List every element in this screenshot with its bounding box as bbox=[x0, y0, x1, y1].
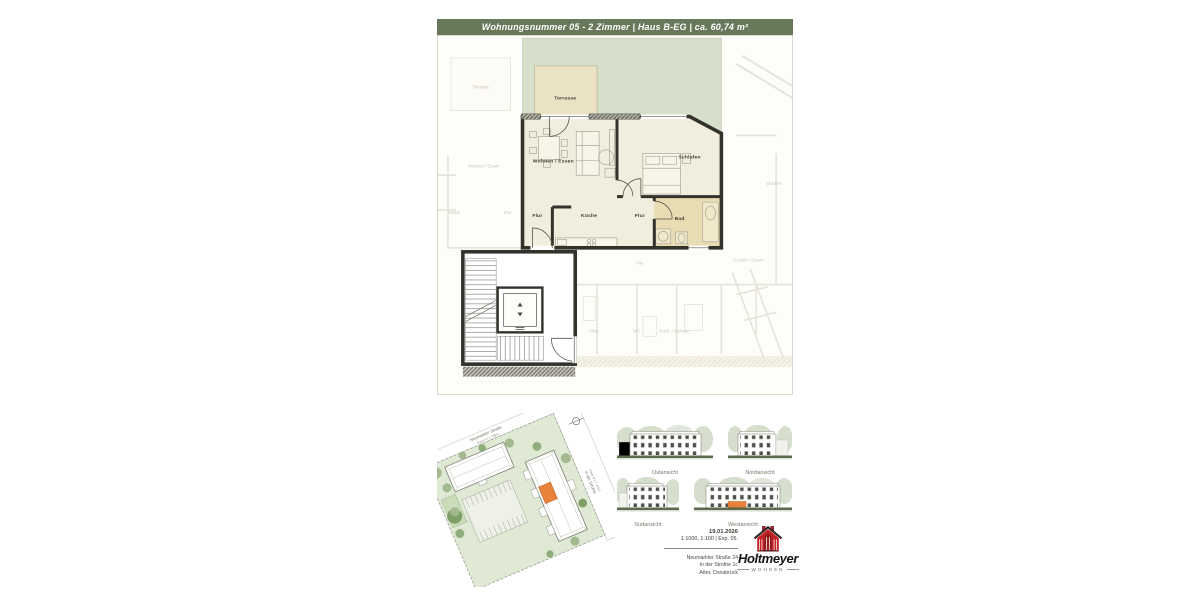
logo-dash-left bbox=[737, 569, 749, 570]
title-banner: Wohnungsnummer 05 - 2 Zimmer | Haus B-EG… bbox=[437, 19, 793, 35]
logo-dash-right bbox=[787, 569, 799, 570]
elevation-north-drawing bbox=[728, 424, 792, 464]
faded-terrace-left: Terrasse bbox=[473, 85, 490, 90]
titleblock-divider bbox=[664, 548, 738, 549]
floorplan-drawing: Terrasse Wohnen / Essen Flur Küche Flur … bbox=[438, 36, 792, 394]
siteplan-drawing: Neumarkter Straße Haus A | 1. WEG In der… bbox=[437, 413, 615, 587]
logo-name: Holtmeyer bbox=[737, 552, 799, 566]
faded-wc-bottom: WC bbox=[633, 328, 640, 333]
floorplan-panel: Terrasse Wohnen / Essen Flur Küche Flur … bbox=[437, 35, 793, 395]
elevation-north: Nordansicht bbox=[728, 424, 792, 476]
holtmeyer-house-icon bbox=[753, 524, 783, 552]
faded-storage-bottom: Abst. bbox=[589, 328, 599, 333]
label-kitchen: Küche bbox=[581, 213, 597, 219]
faded-hall-left: Flur bbox=[504, 210, 512, 215]
titleblock-date: 19.01.2026 bbox=[636, 528, 738, 536]
titleblock-address3: Atter, Osnabrück bbox=[636, 570, 738, 578]
stairwell bbox=[463, 252, 577, 377]
faded-ground-hatch bbox=[577, 356, 792, 367]
elevation-south-drawing bbox=[617, 476, 679, 516]
elevation-south: Südansicht bbox=[617, 476, 679, 528]
titleblock: 19.01.2026 1:1000, 1:100 | Exp. 05. Neum… bbox=[636, 528, 738, 578]
titleblock-scale: 1:1000, 1:100 | Exp. 05. bbox=[636, 536, 738, 544]
label-hall-center: Flur bbox=[635, 213, 645, 219]
faded-kitchen-left: Küche bbox=[448, 210, 461, 215]
page-title: Wohnungsnummer 05 - 2 Zimmer | Haus B-EG… bbox=[482, 22, 748, 32]
faded-living-left: Wohnen / Essen bbox=[468, 163, 500, 168]
elevation-west: Westansicht bbox=[694, 476, 792, 528]
faded-hall-bottom: Flur bbox=[636, 261, 644, 266]
siteplan: Neumarkter Straße Haus A | 1. WEG In der… bbox=[437, 413, 615, 587]
elevation-west-drawing bbox=[694, 476, 792, 516]
company-logo: Holtmeyer WOHNEN bbox=[737, 524, 799, 572]
label-bath: Bad bbox=[675, 216, 685, 222]
label-hall-entry: Flur bbox=[532, 213, 542, 219]
titleblock-address1: Neumarkter Straße 24 bbox=[636, 555, 738, 563]
label-terrace: Terrasse bbox=[554, 96, 576, 102]
faded-cook-live-bottom: Koch. / Wohnen bbox=[660, 328, 691, 333]
elevation-east-drawing bbox=[617, 424, 713, 464]
faded-cook-eat-bottom: Kochen / Essen bbox=[733, 258, 764, 263]
label-sleeping: Schlafen bbox=[678, 154, 700, 160]
plan-sheet: Wohnungsnummer 05 - 2 Zimmer | Haus B-EG… bbox=[0, 0, 1200, 600]
label-living: Wohnen / Essen bbox=[533, 158, 574, 164]
faded-living-right: Wohnen bbox=[766, 181, 782, 186]
elevation-east: Ostansicht bbox=[617, 424, 713, 476]
titleblock-address2: In der Strothe 1c bbox=[636, 562, 738, 570]
logo-tagline: WOHNEN bbox=[752, 567, 785, 572]
elevation-west-highlight bbox=[728, 502, 746, 508]
